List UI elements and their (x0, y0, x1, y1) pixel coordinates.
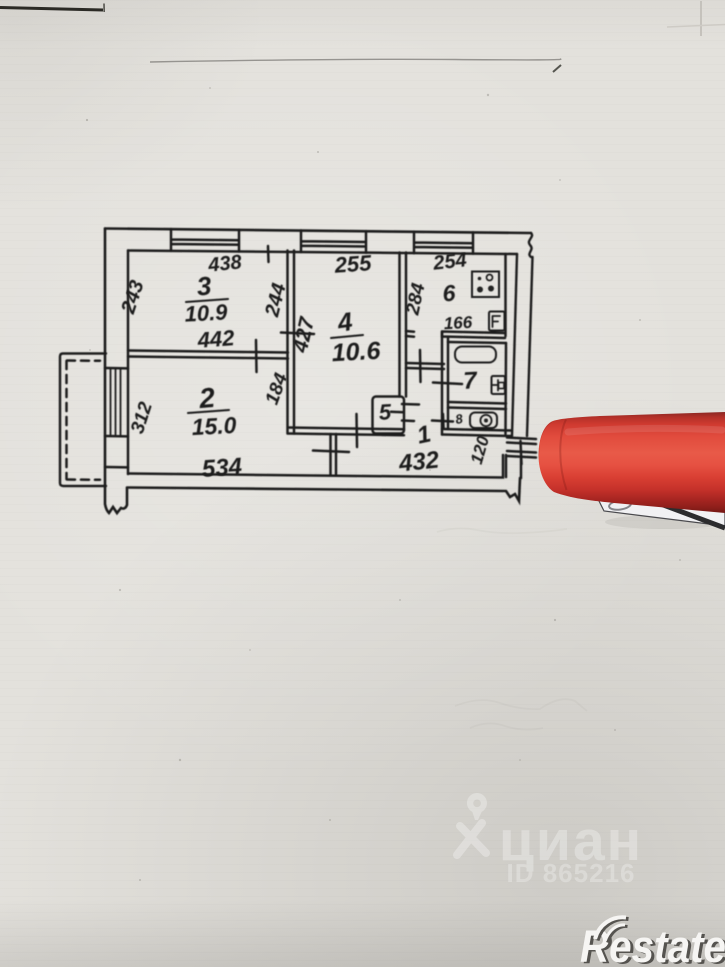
svg-text:120: 120 (467, 433, 493, 466)
svg-text:10.9: 10.9 (184, 299, 229, 326)
svg-text:10.6: 10.6 (331, 337, 382, 368)
svg-text:1: 1 (415, 420, 434, 449)
svg-text:312: 312 (127, 399, 157, 436)
svg-text:534: 534 (201, 453, 243, 483)
svg-text:166: 166 (443, 313, 473, 333)
svg-text:438: 438 (206, 251, 243, 277)
svg-text:6: 6 (442, 280, 456, 307)
svg-text:15.0: 15.0 (191, 412, 237, 440)
svg-text:4: 4 (335, 306, 355, 338)
svg-text:8: 8 (454, 411, 464, 427)
svg-text:5: 5 (378, 399, 392, 425)
svg-text:442: 442 (196, 325, 236, 353)
svg-text:432: 432 (397, 446, 441, 477)
svg-text:243: 243 (117, 278, 149, 317)
svg-text:2: 2 (197, 382, 217, 414)
svg-text:7: 7 (463, 367, 479, 395)
svg-text:254: 254 (431, 249, 467, 274)
svg-text:ID 865216: ID 865216 (507, 858, 636, 888)
svg-text:255: 255 (333, 250, 373, 278)
